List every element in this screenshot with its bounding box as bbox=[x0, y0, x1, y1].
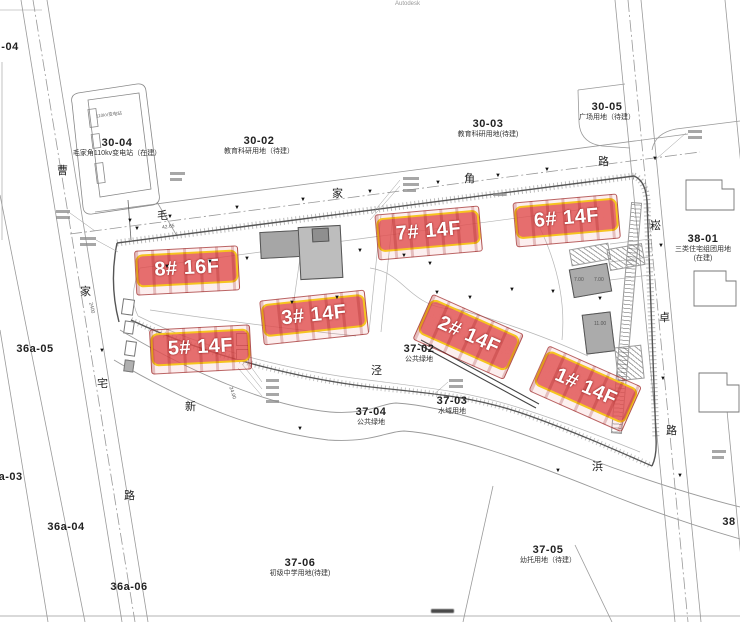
tiny-annotation-text bbox=[170, 172, 185, 175]
survey-marker-icon: ▼ bbox=[164, 264, 170, 270]
survey-marker-icon: ▼ bbox=[495, 173, 501, 179]
river-name-char: 浜 bbox=[592, 462, 603, 473]
parcel-label-30-03: 30-03教育科研用地(待建) bbox=[458, 119, 519, 139]
tiny-annotation-text bbox=[688, 136, 702, 139]
tiny-annotation-text bbox=[266, 400, 279, 403]
road-name-char: 卓 bbox=[659, 313, 670, 324]
road-name-char: 家 bbox=[332, 189, 343, 200]
survey-marker-icon: ▼ bbox=[652, 156, 658, 162]
tiny-annotation-text bbox=[493, 193, 506, 196]
parcel-label-30-02: 30-02教育科研用地（待建） bbox=[224, 136, 294, 156]
survey-marker-icon: ▼ bbox=[134, 226, 140, 232]
survey-marker-icon: ▼ bbox=[357, 248, 363, 254]
building-highlight-8[interactable]: 8# 16F bbox=[135, 249, 239, 287]
road-name-char: 路 bbox=[598, 157, 609, 168]
survey-marker-icon: ▼ bbox=[509, 287, 515, 293]
tiny-annotation-text bbox=[266, 393, 279, 396]
tiny-annotation-text bbox=[712, 456, 724, 459]
tiny-annotation-text bbox=[56, 216, 70, 219]
survey-marker-icon: ▼ bbox=[207, 259, 213, 265]
tiny-annotation-text bbox=[688, 130, 702, 133]
ancillary-structure bbox=[121, 298, 135, 316]
tiny-annotation-text bbox=[403, 177, 419, 180]
parcel-label-30-04: 30-04毛家角110kv变电站（在建） bbox=[73, 138, 161, 158]
river-name-char: 新 bbox=[185, 402, 196, 413]
survey-marker-icon: ▼ bbox=[367, 189, 373, 195]
survey-marker-icon: ▼ bbox=[244, 256, 250, 262]
road-name-char: 崧 bbox=[650, 221, 661, 232]
existing-building bbox=[312, 228, 330, 243]
parcel-label-edge-38: 38 bbox=[722, 517, 735, 528]
survey-marker-icon: ▼ bbox=[677, 473, 683, 479]
survey-marker-icon: ▼ bbox=[434, 290, 440, 296]
parcel-label-36a-06: 36a-06 bbox=[110, 582, 147, 593]
tiny-annotation-text bbox=[170, 178, 182, 181]
building-highlight-5[interactable]: 5# 14F bbox=[150, 328, 251, 366]
tiny-annotation-text bbox=[449, 379, 463, 382]
survey-marker-icon: ▼ bbox=[555, 468, 561, 474]
survey-marker-icon: ▼ bbox=[544, 167, 550, 173]
building-highlight-6[interactable]: 6# 14F bbox=[514, 198, 619, 240]
ancillary-structure bbox=[123, 320, 135, 334]
tiny-annotation-text bbox=[266, 386, 279, 389]
road-name-char: 宅 bbox=[97, 379, 108, 390]
tiny-annotation-text bbox=[80, 237, 96, 240]
road-name-char: 毛 bbox=[157, 211, 168, 222]
autodesk-watermark: Autodesk bbox=[395, 1, 420, 7]
survey-marker-icon: ▼ bbox=[300, 197, 306, 203]
survey-marker-icon: ▼ bbox=[99, 348, 105, 354]
parcel-label-36a-04: 36a-04 bbox=[47, 522, 84, 533]
tiny-annotation-text bbox=[80, 243, 96, 246]
road-name-char: 曹 bbox=[57, 166, 68, 177]
dimension-label: 7.00 bbox=[574, 277, 584, 283]
parcel-label-37-06: 37-06初级中学用地(待建) bbox=[270, 558, 331, 578]
road-name-char: 路 bbox=[124, 491, 135, 502]
road-name-char: 家 bbox=[80, 287, 91, 298]
parcel-label-38-01: 38-01三类住宅组团用地(在建) bbox=[675, 234, 731, 263]
existing-building bbox=[259, 230, 300, 259]
ancillary-structure bbox=[123, 359, 135, 372]
survey-marker-icon: ▼ bbox=[427, 261, 433, 267]
survey-marker-icon: ▼ bbox=[297, 426, 303, 432]
river-name-char: 泾 bbox=[371, 366, 382, 377]
building-highlight-7[interactable]: 7# 14F bbox=[376, 210, 482, 253]
existing-building bbox=[582, 311, 616, 354]
tiny-annotation-text bbox=[449, 385, 463, 388]
road-name-char: 路 bbox=[666, 426, 677, 437]
survey-marker-icon: ▼ bbox=[234, 205, 240, 211]
survey-marker-icon: ▼ bbox=[401, 253, 407, 259]
survey-marker-icon: ▼ bbox=[435, 180, 441, 186]
parcel-label-37-05: 37-05幼托用地（待建） bbox=[520, 545, 576, 565]
survey-marker-icon: ▼ bbox=[550, 289, 556, 295]
building-highlight-3[interactable]: 3# 14F bbox=[261, 294, 368, 338]
survey-marker-icon: ▼ bbox=[289, 300, 295, 306]
parcel-label-36a-03: 36a-03 bbox=[0, 472, 23, 483]
dimension-label: 7.00 bbox=[594, 277, 604, 283]
survey-marker-icon: ▼ bbox=[127, 218, 133, 224]
ancillary-structure bbox=[124, 340, 137, 356]
survey-marker-icon: ▼ bbox=[334, 295, 340, 301]
parcel-label-37-04: 37-04公共绿地 bbox=[356, 407, 387, 427]
road-name-char: 角 bbox=[464, 174, 475, 185]
parcel-label-37-03: 37-03水域用地 bbox=[437, 396, 468, 416]
survey-marker-icon: ▼ bbox=[597, 296, 603, 302]
parcel-label-36a-05: 36a-05 bbox=[16, 344, 53, 355]
parcel-label-37-02: 37-02公共绿地 bbox=[404, 344, 435, 364]
survey-marker-icon: ▼ bbox=[658, 243, 664, 249]
site-plan-canvas: Autodesk -04 30-04毛家角110kv变电站（在建） 30-02教… bbox=[0, 0, 740, 622]
tiny-annotation-text bbox=[403, 189, 416, 192]
survey-marker-icon: ▼ bbox=[660, 376, 666, 382]
survey-marker-icon: ▼ bbox=[467, 295, 473, 301]
parcel-label-30-05: 30-05广场用地（待建） bbox=[579, 102, 635, 122]
tiny-annotation-text bbox=[403, 183, 419, 186]
tiny-annotation-text bbox=[266, 379, 279, 382]
parcel-label-edge-04: -04 bbox=[1, 42, 18, 53]
tiny-annotation-text bbox=[712, 450, 726, 453]
dimension-label: 11.00 bbox=[594, 321, 606, 327]
bottom-smudge-watermark bbox=[431, 609, 454, 613]
tiny-annotation-text bbox=[56, 210, 70, 213]
